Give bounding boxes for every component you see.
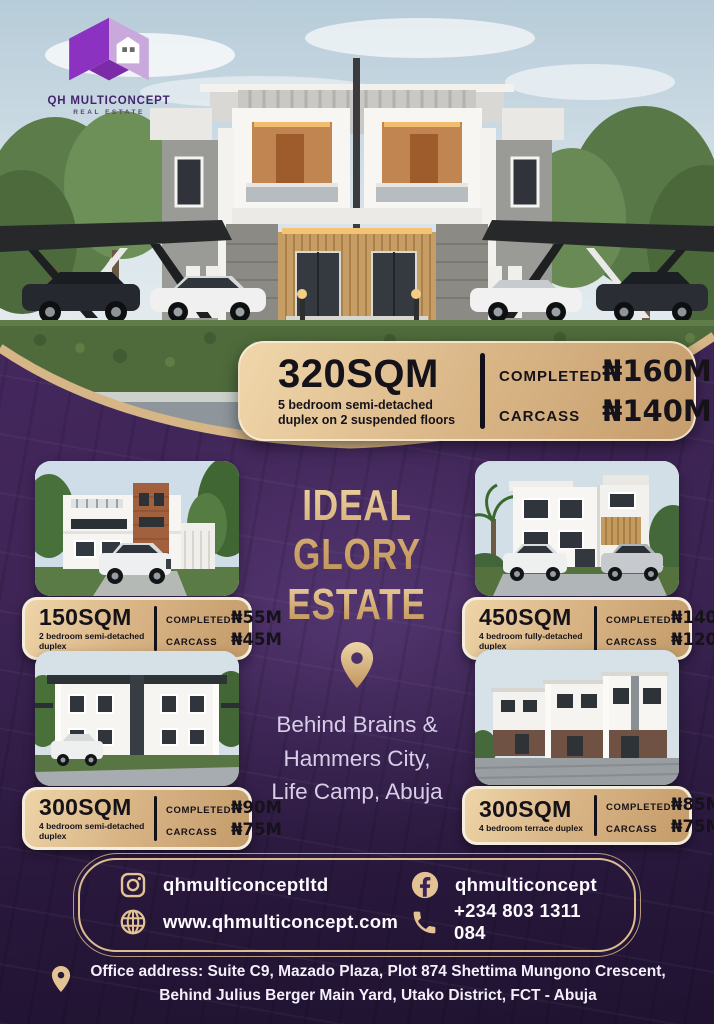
estate-location-line: Behind Brains & xyxy=(240,708,474,742)
estate-location-line: Hammers City, xyxy=(240,742,474,776)
divider xyxy=(594,606,597,651)
listing-photo xyxy=(35,461,239,596)
hero-offer-banner: 320SQM 5 bedroom semi-detached duplex on… xyxy=(238,341,696,441)
house-render-300sqm-terrace xyxy=(475,650,679,785)
instagram-handle: qhmulticonceptltd xyxy=(163,874,328,896)
listing-size: 150SQM xyxy=(39,606,145,629)
phone-icon xyxy=(410,908,439,937)
hero-offer-size: 320SQM xyxy=(278,354,466,394)
price-pill: 300SQM 4 bedroom terrace duplex COMPLETE… xyxy=(462,786,692,845)
instagram-icon xyxy=(118,870,148,900)
divider xyxy=(594,795,597,836)
carcass-price: ₦120M xyxy=(671,630,714,649)
carcass-label: CARCASS xyxy=(499,408,580,425)
carcass-label: CARCASS xyxy=(166,827,217,838)
listing-description: 4 bedroom semi-detached duplex xyxy=(39,821,145,841)
brand-logo: QH MULTICONCEPT REAL ESTATE xyxy=(34,14,184,116)
completed-price: ₦160M xyxy=(602,354,712,388)
completed-price: ₦85M xyxy=(671,795,714,814)
website-url: www.qhmulticoncept.com xyxy=(163,911,398,933)
completed-label: COMPLETED xyxy=(499,368,602,385)
estate-title-line1: IDEAL GLORY xyxy=(263,481,450,580)
instagram-contact[interactable]: qhmulticonceptltd xyxy=(118,870,410,900)
completed-label: COMPLETED xyxy=(606,802,671,813)
office-address-line1: Office address: Suite C9, Mazado Plaza, … xyxy=(90,960,665,984)
globe-icon xyxy=(118,907,148,937)
house-cube-logo-icon xyxy=(61,14,157,88)
listing-photo xyxy=(35,651,239,786)
divider xyxy=(480,353,485,429)
listing-size: 300SQM xyxy=(39,796,145,819)
listing-description: 2 bedroom semi-detached duplex xyxy=(39,631,145,651)
house-render-300sqm-semi xyxy=(35,651,239,786)
divider xyxy=(154,606,157,651)
brand-name: QH MULTICONCEPT xyxy=(34,95,184,107)
location-pin-icon xyxy=(334,639,380,696)
real-estate-flyer: QH MULTICONCEPT REAL ESTATE 320SQM 5 bed… xyxy=(0,0,714,1024)
listing-card-300sqm-semi: 300SQM 4 bedroom semi-detached duplex CO… xyxy=(22,651,252,850)
facebook-contact[interactable]: qhmulticoncept xyxy=(410,870,608,900)
price-pill: 300SQM 4 bedroom semi-detached duplex CO… xyxy=(22,787,252,850)
estate-location-line: Life Camp, Abuja xyxy=(240,775,474,809)
carcass-label: CARCASS xyxy=(606,824,657,835)
completed-price: ₦140M xyxy=(671,608,714,627)
listing-size: 300SQM xyxy=(479,798,585,821)
listing-card-450sqm: 450SQM 4 bedroom fully-detached duplex C… xyxy=(462,461,692,660)
listing-description: 4 bedroom terrace duplex xyxy=(479,823,585,833)
divider xyxy=(154,796,157,841)
facebook-icon xyxy=(410,870,440,900)
estate-title-line2: ESTATE xyxy=(288,580,426,629)
completed-label: COMPLETED xyxy=(166,805,231,816)
carcass-label: CARCASS xyxy=(166,637,217,648)
listing-card-150sqm: 150SQM 2 bedroom semi-detached duplex CO… xyxy=(22,461,252,660)
contact-bar: qhmulticonceptltd qhmulticoncept www.qhm… xyxy=(78,858,636,952)
footer-address: Office address: Suite C9, Mazado Plaza, … xyxy=(36,960,678,1008)
brand-tagline: REAL ESTATE xyxy=(34,109,184,116)
listing-photo xyxy=(475,650,679,785)
listing-photo xyxy=(475,461,679,596)
facebook-handle: qhmulticoncept xyxy=(455,874,597,896)
completed-label: COMPLETED xyxy=(606,615,671,626)
listing-card-300sqm-terrace: 300SQM 4 bedroom terrace duplex COMPLETE… xyxy=(462,650,692,845)
carcass-price: ₦75M xyxy=(671,817,714,836)
location-pin-icon xyxy=(48,964,74,999)
house-render-450sqm xyxy=(475,461,679,596)
website-contact[interactable]: www.qhmulticoncept.com xyxy=(118,907,410,937)
estate-info: IDEAL GLORY ESTATE Behind Brains & Hamme… xyxy=(240,481,474,809)
hero-offer-description: 5 bedroom semi-detached duplex on 2 susp… xyxy=(278,398,466,429)
carcass-price: ₦75M xyxy=(231,820,282,839)
carcass-price: ₦140M xyxy=(602,394,712,428)
office-address-line2: Behind Julius Berger Main Yard, Utako Di… xyxy=(90,984,665,1008)
house-render-150sqm xyxy=(35,461,239,596)
completed-label: COMPLETED xyxy=(166,615,231,626)
phone-number: +234 803 1311 084 xyxy=(454,900,608,944)
listing-description: 4 bedroom fully-detached duplex xyxy=(479,631,585,651)
listing-size: 450SQM xyxy=(479,606,585,629)
phone-contact[interactable]: +234 803 1311 084 xyxy=(410,900,608,944)
carcass-label: CARCASS xyxy=(606,637,657,648)
